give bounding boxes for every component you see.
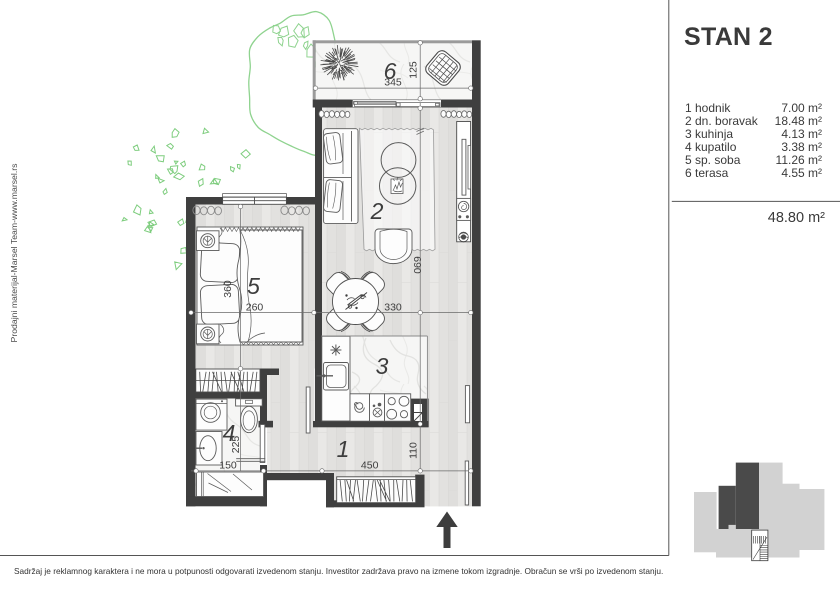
svg-text:3.38 m²: 3.38 m² [781,140,822,154]
svg-text:360: 360 [222,280,234,298]
svg-text:330: 330 [384,302,402,314]
svg-text:3 kuhinja: 3 kuhinja [685,127,733,141]
svg-text:2: 2 [370,198,384,224]
svg-text:4 kupatilo: 4 kupatilo [685,140,737,154]
svg-text:150: 150 [219,460,237,472]
svg-text:690: 690 [411,256,423,274]
svg-text:260: 260 [246,302,264,314]
svg-text:5: 5 [247,273,260,299]
svg-text:4.13 m²: 4.13 m² [781,127,822,141]
svg-text:345: 345 [384,77,402,89]
svg-text:1 hodnik: 1 hodnik [685,101,731,115]
svg-text:225: 225 [230,436,242,454]
svg-text:5 sp. soba: 5 sp. soba [685,153,741,167]
svg-text:7.00 m²: 7.00 m² [781,101,822,115]
svg-text:3: 3 [376,353,389,379]
svg-text:1: 1 [337,436,350,462]
svg-text:4.55 m²: 4.55 m² [781,166,822,180]
svg-text:125: 125 [408,61,420,79]
svg-text:STAN 2: STAN 2 [684,23,773,51]
svg-text:11.26 m²: 11.26 m² [776,153,822,167]
svg-text:Sadržaj je reklamnog karaktera: Sadržaj je reklamnog karaktera i ne mora… [14,566,663,576]
svg-text:2 dn. boravak: 2 dn. boravak [685,114,759,128]
svg-text:450: 450 [361,460,379,472]
svg-text:110: 110 [407,442,419,459]
svg-text:18.48 m²: 18.48 m² [775,114,822,128]
svg-text:48.80 m²: 48.80 m² [768,210,825,226]
svg-text:6 terasa: 6 terasa [685,166,729,180]
svg-text:Prodajni materijal-Marsel Team: Prodajni materijal-Marsel Team-www.marse… [9,163,19,343]
